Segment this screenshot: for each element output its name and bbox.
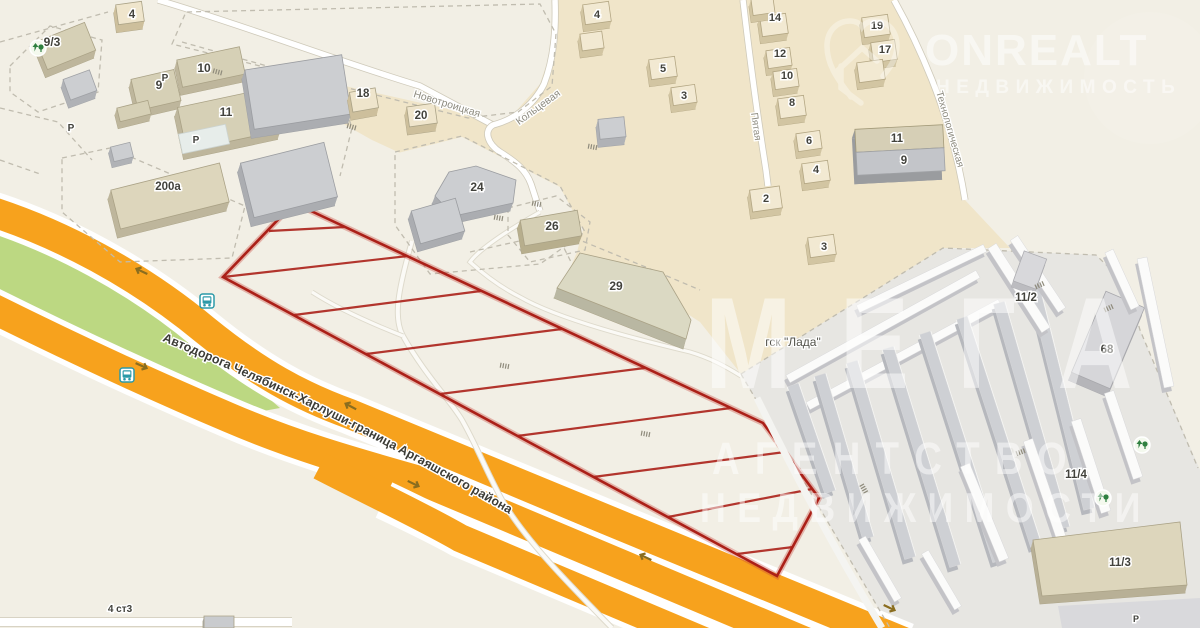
svg-text:12: 12 — [774, 48, 786, 60]
svg-text:10: 10 — [197, 61, 211, 75]
svg-text:3: 3 — [681, 90, 687, 102]
svg-text:4: 4 — [129, 9, 136, 21]
svg-text:29: 29 — [609, 279, 623, 293]
svg-text:2: 2 — [763, 193, 769, 205]
svg-text:АГЕНТСТВО: АГЕНТСТВО — [712, 433, 1082, 484]
svg-text:ONREALT: ONREALT — [925, 26, 1148, 75]
svg-text:20: 20 — [415, 110, 428, 122]
svg-text:17: 17 — [879, 44, 891, 56]
svg-text:МЕГА: МЕГА — [705, 270, 1181, 416]
svg-text:P: P — [162, 73, 169, 84]
svg-text:P: P — [68, 123, 75, 134]
svg-text:11: 11 — [220, 105, 233, 119]
svg-text:4 ст3: 4 ст3 — [108, 604, 133, 615]
svg-text:8: 8 — [789, 97, 795, 109]
svg-text:10: 10 — [781, 70, 793, 82]
svg-text:Р: Р — [1133, 614, 1139, 624]
svg-text:11/3: 11/3 — [1109, 557, 1131, 569]
svg-text:3: 3 — [821, 241, 827, 253]
svg-text:11: 11 — [891, 133, 904, 145]
svg-text:P: P — [193, 135, 200, 146]
svg-text:18: 18 — [357, 88, 370, 100]
svg-text:6: 6 — [806, 135, 812, 147]
svg-text:4: 4 — [594, 9, 601, 21]
svg-text:НЕДВИЖИМОСТЬ: НЕДВИЖИМОСТЬ — [936, 77, 1181, 98]
svg-text:5: 5 — [660, 63, 666, 75]
svg-text:9/3: 9/3 — [44, 35, 61, 49]
svg-text:24: 24 — [470, 180, 484, 194]
svg-text:НЕДВИЖИМОСТИ: НЕДВИЖИМОСТИ — [700, 485, 1152, 531]
svg-text:9: 9 — [901, 155, 907, 167]
svg-text:26: 26 — [545, 219, 559, 233]
svg-text:200a: 200a — [155, 181, 181, 193]
svg-text:14: 14 — [769, 12, 782, 24]
svg-text:4: 4 — [813, 164, 820, 176]
